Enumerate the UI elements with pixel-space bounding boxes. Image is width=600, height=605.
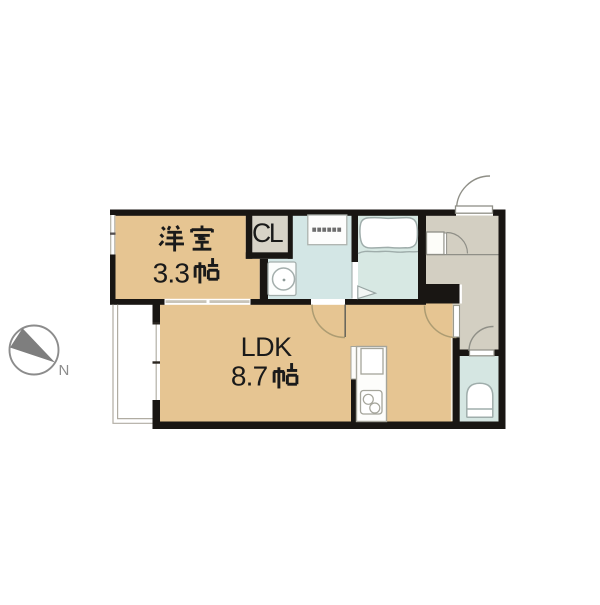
svg-text:CL: CL [252,218,283,248]
svg-text:3.3: 3.3 [153,257,190,288]
svg-text:8.7: 8.7 [231,361,268,392]
svg-text:LDK: LDK [241,332,293,362]
svg-text:N: N [59,362,70,379]
